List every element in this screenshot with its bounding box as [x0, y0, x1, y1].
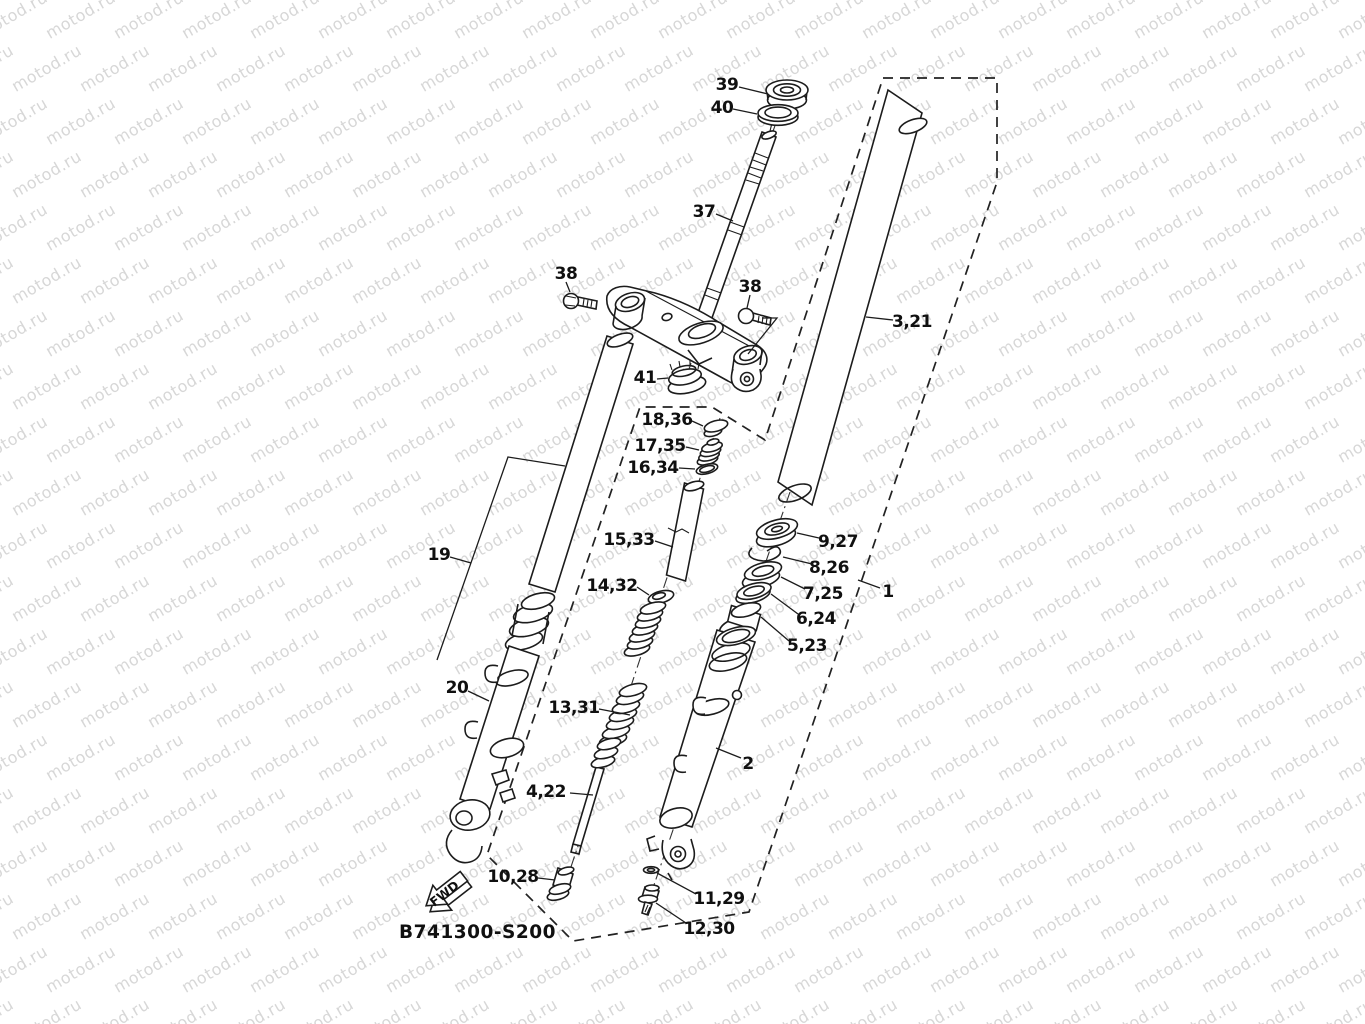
- part-label-41: 41: [634, 368, 657, 388]
- pinch-bolt-left: [564, 294, 598, 310]
- drawing-code: B741300-S200: [399, 922, 556, 943]
- part-label-13-31: 13,31: [548, 698, 599, 718]
- part-label-16-34: 16,34: [627, 458, 679, 478]
- part-label-39: 39: [716, 75, 739, 95]
- part-label-18-36: 18,36: [641, 410, 692, 430]
- part-label-5-23: 5,23: [787, 636, 827, 656]
- part-label-20: 20: [446, 678, 469, 698]
- part-label-10-28: 10,28: [487, 867, 538, 887]
- part-label-12-30: 12,30: [683, 919, 735, 939]
- part-label-17-35: 17,35: [634, 436, 685, 456]
- part-label-9-27: 9,27: [818, 532, 858, 552]
- exploded-parts-drawing: 39 40 37 38 38 41 18,36 17,35 16,34 15,3…: [0, 0, 1365, 1024]
- part-label-4-22: 4,22: [526, 782, 566, 802]
- part-label-15-33: 15,33: [603, 530, 654, 550]
- fork-inner-tube-right: [777, 90, 929, 506]
- fwd-arrow: FWD: [419, 867, 476, 921]
- part-label-11-29: 11,29: [693, 889, 744, 909]
- damper-bolt: [639, 885, 660, 915]
- part-label-38-left: 38: [555, 264, 578, 284]
- seal-stack-parts: [720, 515, 800, 637]
- part-label-19: 19: [428, 545, 451, 565]
- drain-washer: [644, 867, 659, 874]
- parts-diagram-page: { "watermark": { "text": "motod.ru", "co…: [0, 0, 1365, 1024]
- part-label-37: 37: [693, 202, 716, 222]
- fork-outer-tube-right: [647, 623, 757, 880]
- steering-stem: [693, 123, 777, 332]
- part-label-7-25: 7,25: [803, 584, 843, 604]
- part-label-3-21: 3,21: [892, 312, 932, 332]
- part-label-38-right: 38: [739, 277, 762, 297]
- part-label-8-26: 8,26: [809, 558, 849, 578]
- part-label-40: 40: [711, 98, 734, 118]
- part-label-14-32: 14,32: [586, 576, 637, 596]
- part-label-6-24: 6,24: [796, 609, 837, 629]
- part-label-2: 2: [742, 754, 753, 774]
- stem-washer: [758, 105, 798, 126]
- part-label-1: 1: [882, 582, 893, 602]
